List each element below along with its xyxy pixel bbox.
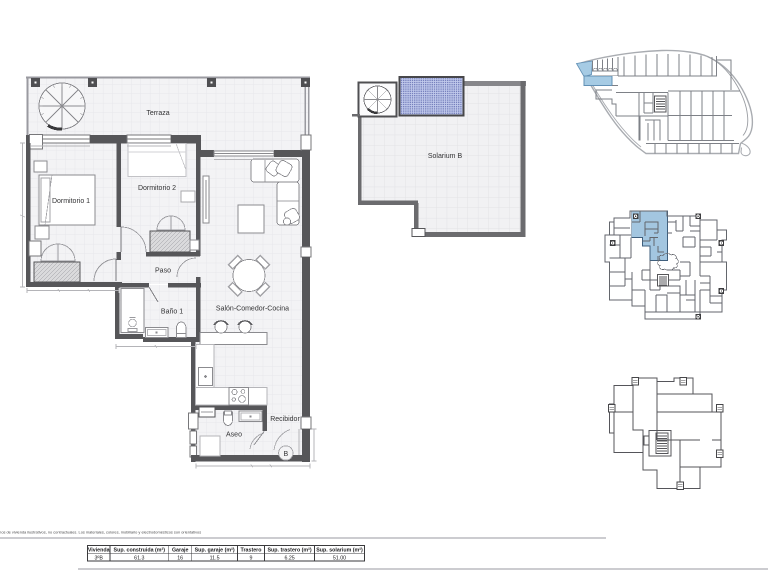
svg-text:Solarium B: Solarium B (428, 153, 463, 160)
svg-text:9: 9 (250, 555, 253, 561)
svg-text:B: B (283, 451, 288, 458)
svg-text:3ºB: 3ºB (94, 555, 103, 561)
svg-text:Trastero: Trastero (241, 548, 263, 554)
svg-text:Sup. solarium (m²): Sup. solarium (m²) (316, 548, 363, 554)
svg-text:6.25: 6.25 (284, 555, 294, 561)
svg-text:61.3: 61.3 (134, 555, 144, 561)
svg-text:Vivienda: Vivienda (88, 548, 110, 554)
svg-text:51.00: 51.00 (333, 555, 346, 561)
svg-text:Aseo: Aseo (226, 432, 242, 439)
svg-text:Dormitorio 2: Dormitorio 2 (138, 185, 176, 192)
svg-text:Paso: Paso (155, 268, 171, 275)
svg-text:16: 16 (177, 555, 183, 561)
svg-text:Recibidor: Recibidor (270, 416, 300, 423)
svg-text:Garaje: Garaje (172, 548, 189, 554)
svg-text:Baño 1: Baño 1 (161, 309, 183, 316)
svg-text:Salón-Comedor-Cocina: Salón-Comedor-Cocina (216, 306, 289, 313)
svg-text:Dormitorio 1: Dormitorio 1 (52, 198, 90, 205)
svg-text:Sup. trastero (m²): Sup. trastero (m²) (268, 548, 312, 554)
svg-text:11.5: 11.5 (210, 555, 220, 561)
svg-text:Sup. garaje (m²): Sup. garaje (m²) (195, 548, 235, 554)
svg-text:Sup. construida (m²): Sup. construida (m²) (114, 548, 166, 554)
svg-text:anos de vivienda ilustrativos,: anos de vivienda ilustrativos, no contra… (0, 530, 201, 535)
svg-text:Terraza: Terraza (146, 110, 169, 117)
